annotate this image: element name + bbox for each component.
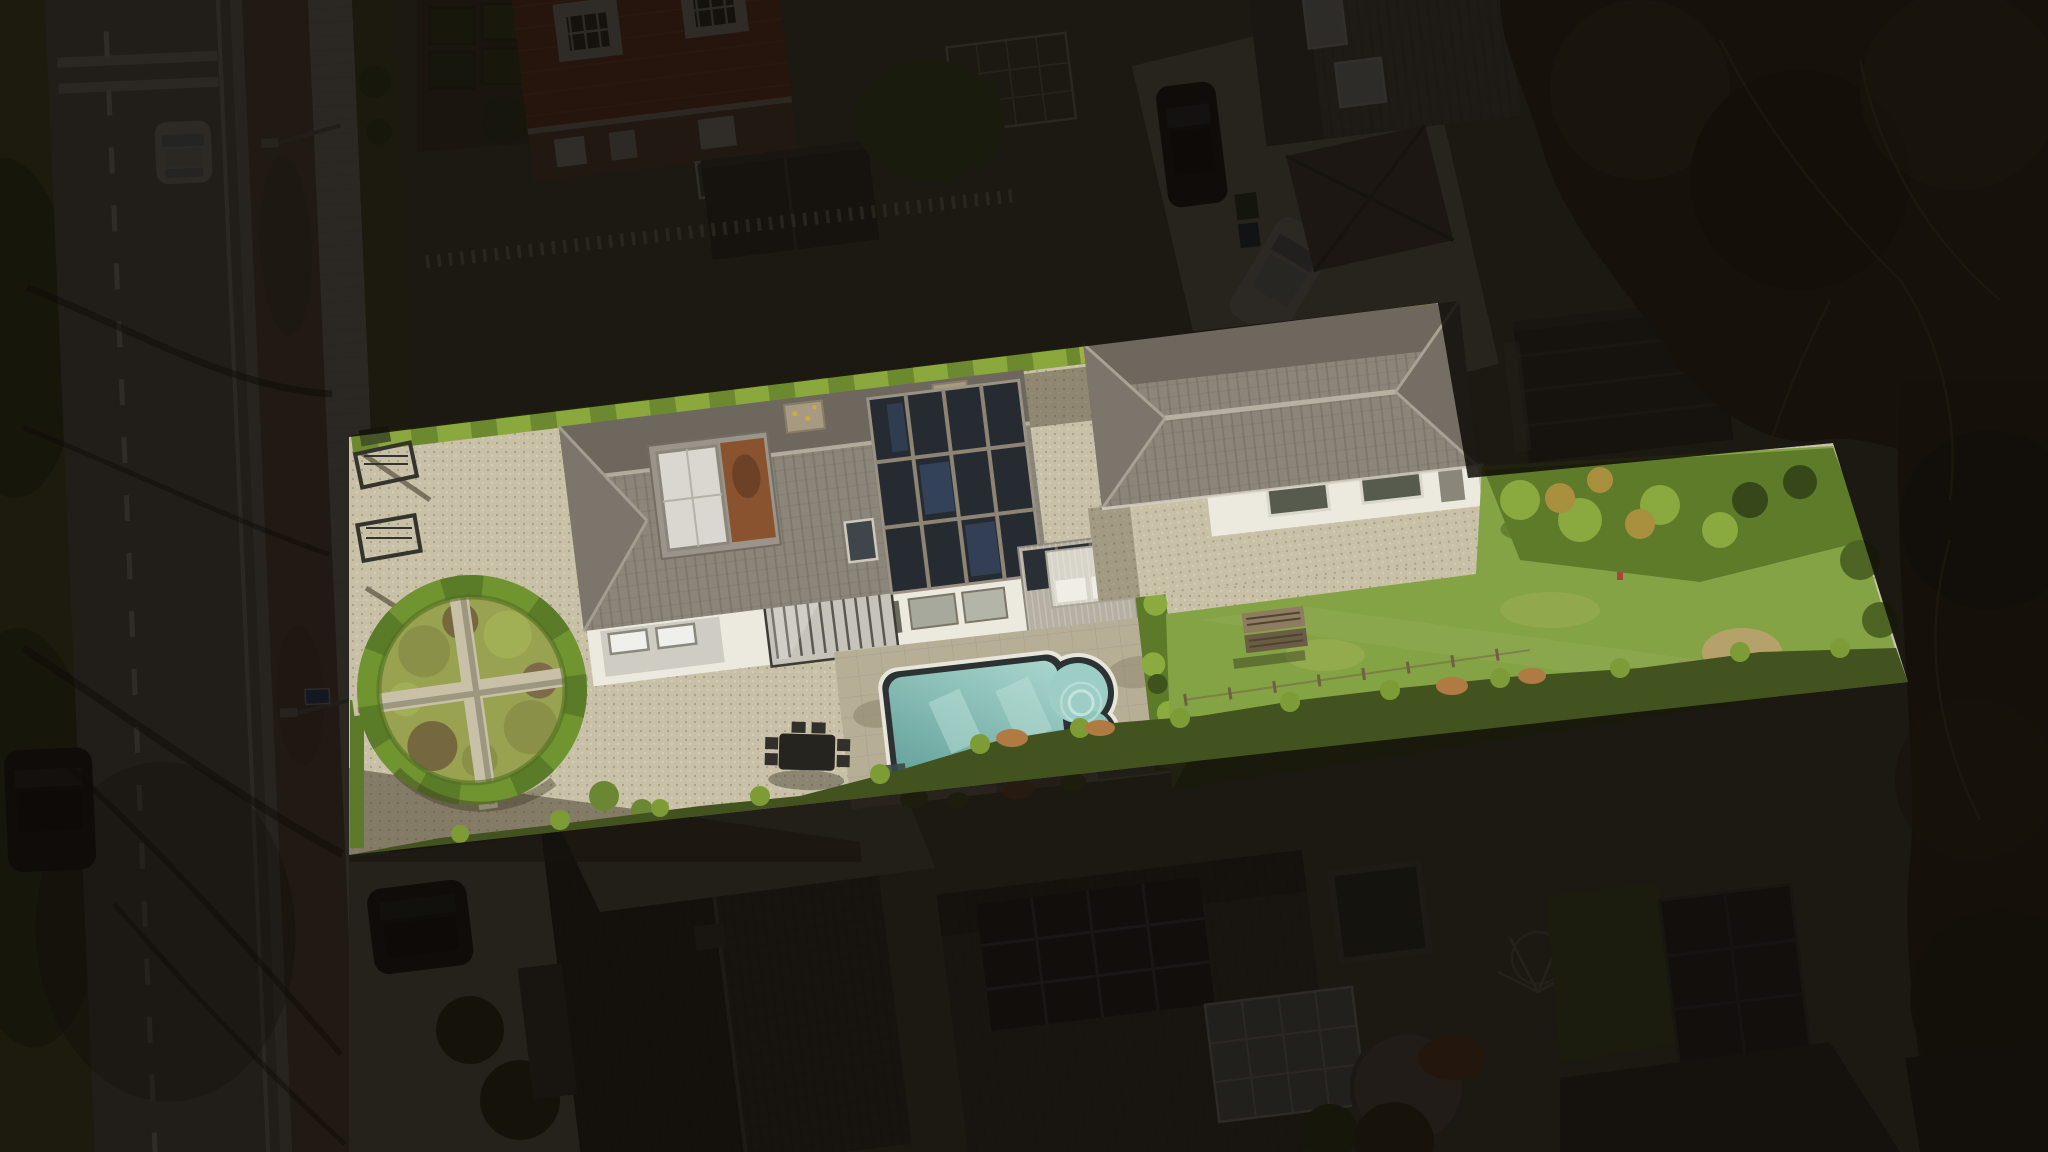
dormer — [648, 431, 781, 559]
window — [908, 594, 957, 629]
aerial-photo — [0, 0, 2048, 1152]
window — [962, 588, 1007, 623]
bungalow — [1069, 300, 1494, 601]
rooflight — [656, 624, 696, 648]
solar-array — [868, 380, 1043, 593]
roof-window — [845, 519, 878, 562]
bush — [589, 781, 619, 811]
screenshot-root — [0, 0, 2048, 1152]
chimney — [784, 400, 825, 432]
door — [1438, 468, 1465, 503]
rooflight — [608, 630, 648, 654]
